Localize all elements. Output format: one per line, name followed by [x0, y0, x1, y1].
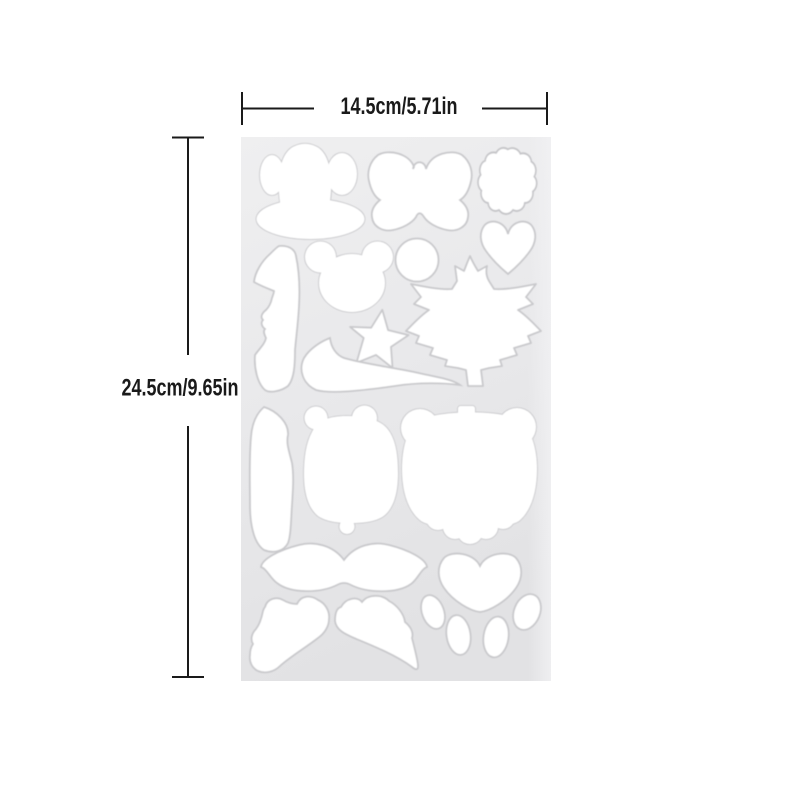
svg-text:14.5cm/5.71in: 14.5cm/5.71in — [340, 94, 457, 120]
svg-text:24.5cm/9.65in: 24.5cm/9.65in — [121, 375, 238, 401]
